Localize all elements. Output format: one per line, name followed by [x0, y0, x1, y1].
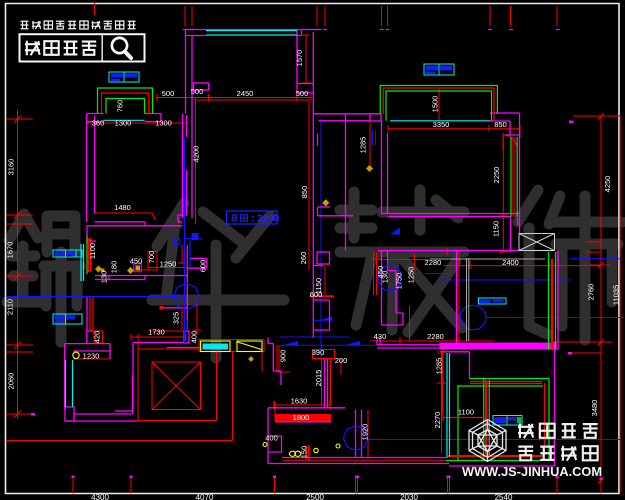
svg-text:1670: 1670: [6, 242, 15, 259]
svg-text:400: 400: [190, 331, 199, 344]
svg-text:1800: 1800: [293, 413, 310, 422]
svg-text:2110: 2110: [6, 299, 15, 315]
svg-text:400: 400: [265, 434, 278, 443]
svg-text:1100: 1100: [88, 243, 97, 259]
svg-text:600: 600: [199, 260, 208, 273]
svg-text:1300: 1300: [155, 119, 172, 128]
svg-text:390: 390: [312, 348, 325, 357]
svg-text:850: 850: [300, 186, 309, 199]
svg-text:2270: 2270: [433, 412, 442, 429]
svg-text:200: 200: [335, 356, 348, 365]
svg-text:180: 180: [110, 261, 119, 274]
svg-text:150: 150: [300, 446, 309, 459]
svg-text:2250: 2250: [492, 167, 501, 184]
svg-text:1480: 1480: [114, 203, 131, 212]
svg-text:2280: 2280: [427, 332, 444, 341]
svg-text:WWW.JS-JINHUA.COM: WWW.JS-JINHUA.COM: [462, 464, 602, 479]
svg-text:360: 360: [92, 119, 105, 128]
svg-text:500: 500: [296, 89, 309, 98]
svg-text:11035: 11035: [612, 285, 621, 305]
svg-text:1730: 1730: [148, 328, 165, 337]
svg-text:260: 260: [299, 252, 308, 265]
svg-text:2030: 2030: [400, 493, 418, 500]
svg-text:2060: 2060: [7, 373, 16, 390]
svg-text:1500: 1500: [431, 96, 440, 113]
svg-text:325: 325: [172, 312, 181, 325]
svg-text:4300: 4300: [91, 493, 109, 500]
svg-text:1100: 1100: [458, 408, 474, 417]
svg-text:420: 420: [93, 331, 102, 344]
svg-text:2280: 2280: [425, 258, 442, 267]
svg-text:1750: 1750: [395, 273, 404, 290]
svg-text:1920: 1920: [361, 424, 370, 441]
svg-text:4250: 4250: [603, 176, 612, 193]
svg-text:3350: 3350: [433, 120, 450, 129]
svg-text:1250: 1250: [160, 260, 177, 269]
svg-text:1150: 1150: [314, 278, 323, 294]
svg-text:850: 850: [494, 120, 507, 129]
svg-text:900: 900: [279, 350, 288, 363]
svg-text:1570: 1570: [295, 50, 304, 67]
svg-text:2015: 2015: [314, 370, 323, 387]
svg-text:: 2900: : 2900: [251, 214, 280, 225]
svg-text:2760: 2760: [587, 284, 596, 301]
svg-text:2540: 2540: [495, 493, 513, 500]
svg-text:3160: 3160: [7, 159, 16, 176]
svg-text:4200: 4200: [192, 146, 201, 163]
svg-text:1630: 1630: [291, 397, 308, 406]
svg-text:2400: 2400: [502, 258, 519, 267]
svg-text:1300: 1300: [115, 119, 132, 128]
svg-text:450: 450: [130, 257, 143, 266]
svg-text:1230: 1230: [83, 352, 100, 361]
svg-text:500: 500: [191, 87, 204, 96]
svg-text:700: 700: [147, 251, 156, 264]
svg-text:2500: 2500: [306, 493, 324, 500]
svg-text:760: 760: [116, 100, 125, 113]
svg-text:500: 500: [162, 89, 175, 98]
svg-text:3480: 3480: [590, 400, 599, 417]
svg-text:2450: 2450: [237, 89, 254, 98]
svg-text:430: 430: [374, 332, 387, 341]
svg-text:130: 130: [100, 271, 109, 284]
svg-text:1250: 1250: [407, 267, 416, 284]
svg-text:130: 130: [381, 271, 390, 284]
svg-text:1285: 1285: [359, 137, 368, 154]
svg-text:4070: 4070: [196, 493, 214, 500]
svg-text:1285: 1285: [435, 358, 444, 375]
svg-text:1150: 1150: [492, 221, 501, 237]
